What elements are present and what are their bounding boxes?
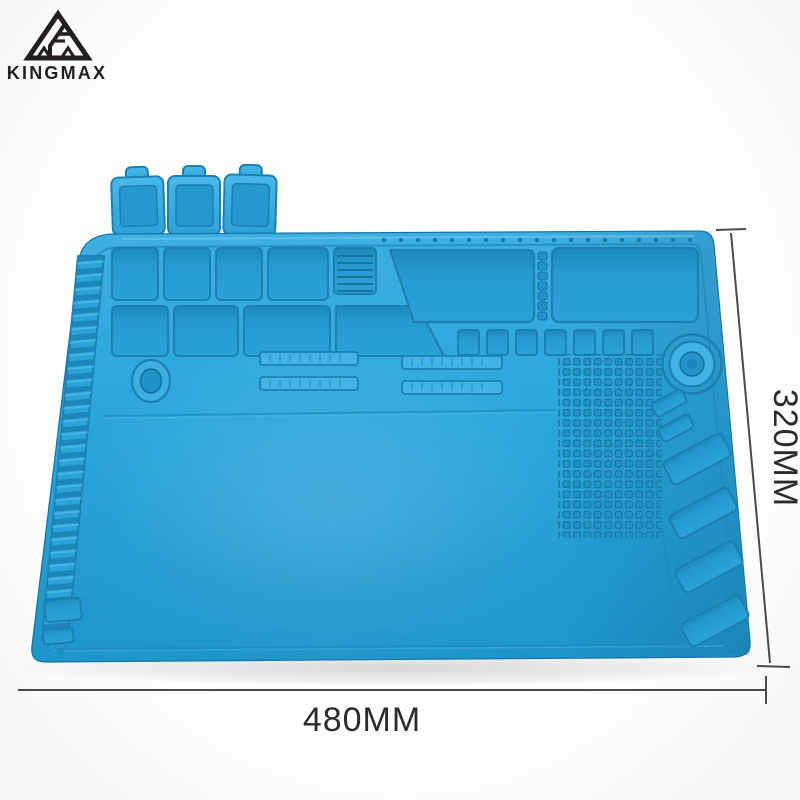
mat-lid [223,164,277,235]
ribbed-patch [334,248,376,294]
comb-slots [458,330,653,355]
dotted-divider [538,252,547,320]
height-dimension-label: 320MM [766,389,800,507]
magnet-ring-left [132,360,170,402]
mat-lid [111,166,165,236]
height-dimension-tick-top [716,229,746,230]
mat-body [32,231,750,675]
brand-logo: KINGMAX [7,14,107,83]
width-dimension-label: 480MM [303,701,421,739]
mat-flip-lids [111,164,277,236]
soldering-mat-product-image: 320MM 480MM KINGMAX [0,0,800,800]
height-dimension-tick-bottom [757,666,790,667]
grip-dot-grid [558,354,662,538]
brand-wordmark: KINGMAX [7,63,107,83]
magnet-ring-right [663,335,722,394]
product-photo: 320MM 480MM KINGMAX [0,0,800,800]
triangle-f-monogram-icon [28,14,88,58]
mat-lid [168,166,220,235]
